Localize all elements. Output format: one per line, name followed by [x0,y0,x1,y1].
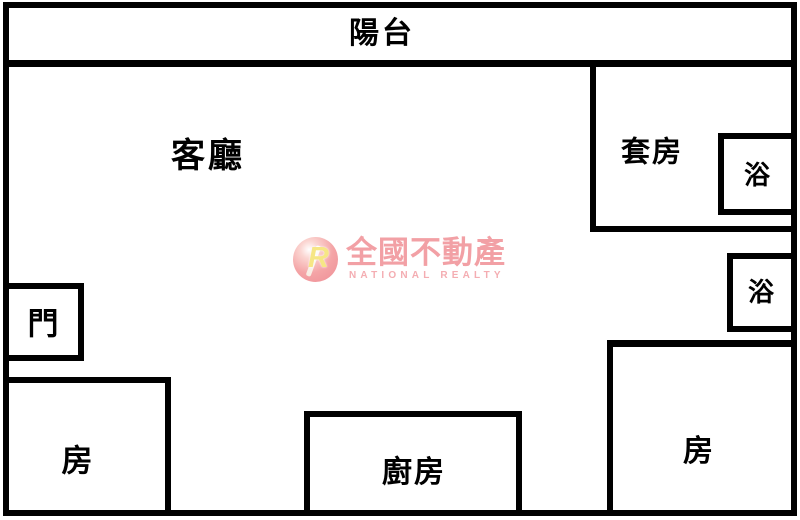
bedroom-right-left-wall [607,340,613,516]
suite-left-wall [590,60,596,232]
suite-label: 套房 [621,139,683,168]
kitchen-label: 廚房 [382,458,446,488]
entry-door-label: 門 [28,309,59,340]
watermark-brand-name-en: NATIONAL REALTY [349,271,505,281]
living-room-label: 客廳 [171,139,245,173]
realty-watermark: R 全國不動產 NATIONAL REALTY [293,234,518,286]
logo-monogram: R [308,244,329,273]
bedroom-right-top-wall [607,340,797,347]
floor-plan: 陽台 客廳 套房 浴 浴 門 房 廚房 房 R 全國不動產 NATIONAL R… [0,0,800,520]
watermark-brand-name: 全國不動產 [346,237,506,268]
balcony-label: 陽台 [349,19,415,49]
bedroom-left-label: 房 [62,446,93,477]
suite-bottom-wall [590,226,797,232]
suite-bath-label: 浴 [744,162,770,188]
realty-logo-icon: R [293,237,338,282]
bedroom-right-label: 房 [683,437,713,467]
hall-bath-label: 浴 [748,279,774,305]
balcony-wall [3,60,797,67]
